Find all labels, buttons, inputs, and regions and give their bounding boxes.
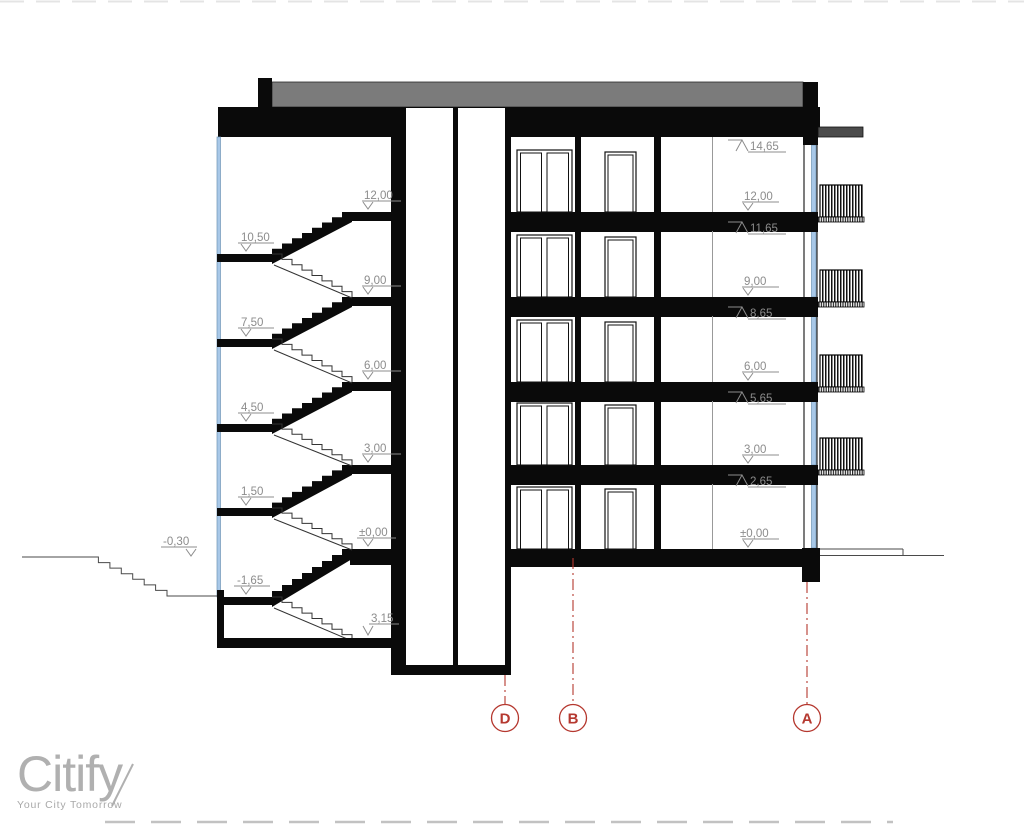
level-label: 6,00 (364, 360, 386, 372)
roof-slab-band (218, 107, 820, 137)
balcony-railing (820, 185, 862, 217)
level-label: 3,00 (744, 444, 766, 456)
level-arrow-down (743, 456, 753, 463)
interior-wall (654, 401, 661, 465)
level-label: ±0,00 (740, 528, 769, 540)
door-leaf (608, 408, 633, 465)
balcony-slab-edge (818, 387, 864, 392)
level-label: 9,00 (364, 275, 386, 287)
door-leaf (521, 406, 542, 465)
balcony-slab-edge (818, 470, 864, 475)
stair-flight-outline (272, 424, 352, 465)
balconies (818, 185, 864, 475)
interior-wall (654, 137, 661, 212)
roof-parapet-right (803, 82, 818, 145)
balcony-railing (820, 355, 862, 387)
level-arrow-down (363, 455, 373, 462)
foundation-block (802, 548, 820, 582)
interior-wall (575, 137, 581, 212)
door-leaf (547, 490, 569, 549)
stair-flight-outline (272, 339, 352, 382)
door-leaf (608, 325, 633, 382)
core-wall-middle (453, 108, 458, 665)
interior-wall (654, 484, 661, 549)
interior-wall (575, 484, 581, 549)
wall-block (803, 465, 818, 485)
stair-flight-outline (272, 597, 352, 640)
ground-floor-slab (511, 549, 818, 567)
logo-tagline: Your City Tomorrow (17, 799, 122, 811)
balcony-roof-overhang (818, 127, 863, 137)
window-glazing (812, 401, 817, 465)
interior-wall (575, 316, 581, 382)
level-label: 12,00 (744, 191, 773, 203)
level-label: 10,50 (241, 232, 270, 244)
level-label: 3,00 (364, 443, 386, 455)
shaft-interior (458, 108, 505, 665)
building-section-drawing: DBA12,009,006,003,00±0,003,1510,507,504,… (0, 0, 1024, 825)
window-glazing (812, 316, 817, 382)
window-glazing (812, 484, 817, 548)
level-arrow-down (186, 549, 196, 556)
door-leaf (547, 238, 569, 297)
level-arrow-down (363, 372, 373, 379)
stair-ground-slab (350, 549, 406, 565)
level-arrow-down (743, 540, 753, 547)
stair-flight-cut (272, 382, 352, 434)
interior-wall (575, 231, 581, 297)
level-arrow-down (743, 373, 753, 380)
stair-landing (217, 339, 272, 347)
grid-letter: A (802, 711, 813, 728)
basement-slab (224, 638, 406, 648)
grid-letter: B (568, 711, 579, 728)
door-leaf (547, 323, 569, 382)
level-label: 14,65 (750, 141, 779, 153)
level-arrow-down (363, 287, 373, 294)
balcony-railing (820, 438, 862, 470)
right-facade (802, 137, 820, 582)
stair-flight-outline (272, 508, 352, 549)
stair-flight-stringer (274, 265, 352, 298)
balcony-railing (820, 270, 862, 302)
balcony-slab-edge (818, 302, 864, 307)
grid-letter: D (500, 711, 511, 728)
level-label: 3,15 (371, 613, 393, 625)
level-arrow-down (241, 587, 251, 594)
door-leaf (521, 323, 542, 382)
balcony-slab-edge (818, 217, 864, 222)
stair-landing (217, 254, 272, 262)
logo-wordmark: Citify (17, 750, 122, 798)
blueprint-canvas: DBA12,009,006,003,00±0,003,1510,507,504,… (0, 0, 1024, 825)
door-leaf (521, 153, 542, 212)
level-arrow-down (363, 202, 373, 209)
door-leaf (521, 490, 542, 549)
level-arrow-up (736, 140, 748, 151)
interior-wall (575, 401, 581, 465)
level-label: 7,50 (241, 317, 263, 329)
level-label: 12,00 (364, 190, 393, 202)
stair-flight-stringer (274, 519, 352, 550)
level-label: 5,65 (750, 393, 772, 405)
staircase (217, 137, 406, 648)
stair-floor-slab (350, 382, 406, 391)
door-leaf (608, 492, 633, 549)
window-glazing (812, 231, 817, 297)
level-arrow-down (241, 414, 251, 421)
stair-flight-outline (272, 254, 352, 297)
level-label: 8,65 (750, 308, 772, 320)
roof-gray-slab (272, 82, 803, 107)
level-arrow-down (743, 203, 753, 210)
level-arrow-down (363, 539, 373, 546)
door-leaf (521, 238, 542, 297)
left-glazed-facade (217, 137, 221, 597)
level-label: 1,50 (241, 486, 263, 498)
window-glazing (812, 145, 817, 212)
stair-flight-stringer (274, 350, 352, 383)
stair-floor-slab (350, 212, 406, 221)
stair-flight-cut (272, 465, 352, 518)
stair-landing (217, 597, 272, 605)
stair-flight-cut (272, 297, 352, 349)
level-label: 4,50 (241, 402, 263, 414)
wall-block (803, 137, 818, 145)
level-arrow-down (363, 626, 373, 635)
basement-wall (217, 590, 224, 648)
stair-landing (217, 508, 272, 516)
level-label: 11,65 (750, 223, 778, 235)
level-arrow-down (241, 498, 251, 505)
level-label: 2,65 (750, 476, 772, 488)
level-label: 6,00 (744, 361, 766, 373)
stair-floor-slab (350, 297, 406, 306)
core-pit-slab (391, 665, 511, 675)
excavation-profile (22, 557, 217, 596)
stair-landing (217, 424, 272, 432)
elevator-core (391, 107, 511, 675)
door-leaf (608, 155, 633, 212)
level-label: -0,30 (163, 536, 189, 548)
interior-wall (654, 316, 661, 382)
door-leaf (547, 406, 569, 465)
level-arrow-down (241, 329, 251, 336)
citify-logo: Citify Your City Tomorrow (17, 750, 122, 811)
grid-markers: DBA (492, 558, 821, 732)
wall-block (803, 382, 818, 402)
door-leaf (608, 240, 633, 297)
stair-flight-stringer (274, 435, 352, 466)
core-wall-right (505, 107, 511, 675)
wall-block (803, 212, 818, 232)
roof (218, 78, 863, 145)
interior-wall (654, 231, 661, 297)
level-label: -1,65 (237, 575, 263, 587)
door-leaf (547, 153, 569, 212)
level-arrow-down (743, 288, 753, 295)
roof-parapet-left (258, 78, 272, 107)
stair-floor-slab (350, 465, 406, 474)
shaft-interior (406, 108, 453, 665)
level-label: 9,00 (744, 276, 766, 288)
wall-block (803, 297, 818, 317)
stair-flight-cut (272, 549, 352, 607)
level-arrow-down (241, 244, 251, 251)
stair-flight-cut (272, 212, 352, 264)
stair-flight-stringer (274, 608, 352, 641)
level-label: ±0,00 (359, 527, 388, 539)
